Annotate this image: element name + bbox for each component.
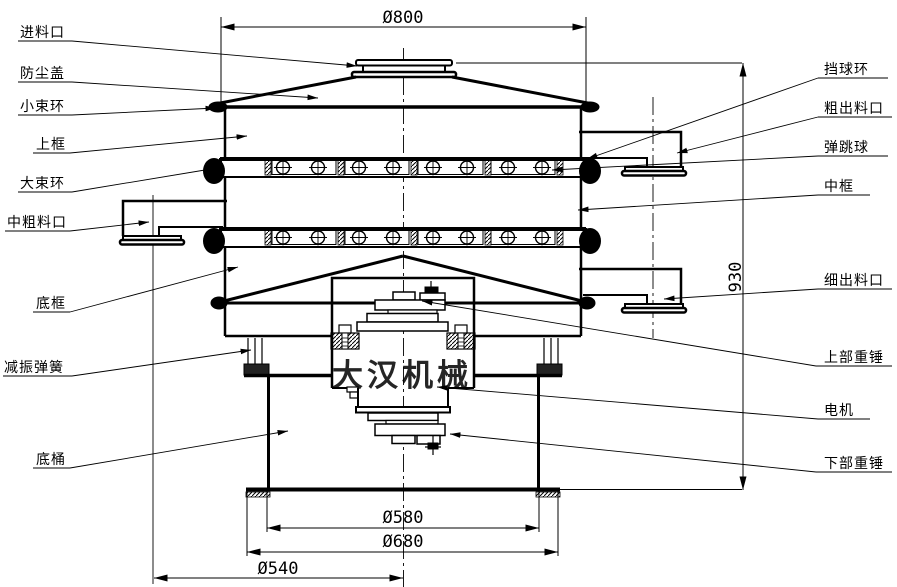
label-upper-weight: 上部重锤 [824,350,884,366]
upper-weight [357,281,448,331]
dim-height-label: 930 [726,262,746,293]
sieve-deck-lower [219,228,587,247]
dim-top-diameter-label: Ø800 [383,8,424,28]
label-dust-cover: 防尘盖 [20,66,65,82]
fine-outlet-duct [579,269,686,313]
label-middle-frame: 中框 [824,179,854,195]
dim-base-flange-label: Ø680 [383,532,424,552]
label-large-clamp-ring: 大束环 [20,176,65,192]
dim-base-inner-label: Ø580 [383,508,424,528]
drawing-canvas: 大汉机械 Ø800 930 Ø580 Ø680 Ø540 [0,0,897,587]
label-bottom-barrel: 底桶 [36,452,66,468]
part-labels-right: 挡球环 粗出料口 弹跳球 中框 细出料口 上部重锤 电机 下部重锤 [824,62,884,472]
label-motor: 电机 [824,403,854,419]
label-damping-spring: 减振弹簧 [4,360,64,376]
sieve-deck-upper [219,158,587,177]
label-bottom-frame: 底框 [36,296,66,312]
vibrating-screen-technical-drawing: 大汉机械 Ø800 930 Ø580 Ø680 Ø540 [0,0,897,587]
dimension-930 [456,63,743,490]
label-coarse-outlet: 粗出料口 [824,101,884,117]
inlet-port [352,60,456,77]
label-inlet: 进料口 [20,25,65,41]
dim-outlet-offset-label: Ø540 [258,559,299,579]
label-middle-coarse-outlet: 中粗料口 [7,215,67,231]
lower-weight [375,424,445,455]
part-labels-left: 进料口 防尘盖 小束环 上框 大束环 中粗料口 底框 减振弹簧 底桶 [4,25,67,468]
small-clamp-ring-right [581,102,599,112]
small-clamp-ring-left [209,102,227,112]
label-small-clamp-ring: 小束环 [20,99,65,115]
label-upper-frame: 上框 [36,137,66,153]
label-fine-outlet: 细出料口 [824,273,884,289]
label-ball-stop-ring: 挡球环 [824,62,869,78]
label-bouncing-ball: 弹跳球 [824,140,869,156]
label-lower-weight: 下部重锤 [824,456,884,472]
machine-body [120,60,686,497]
